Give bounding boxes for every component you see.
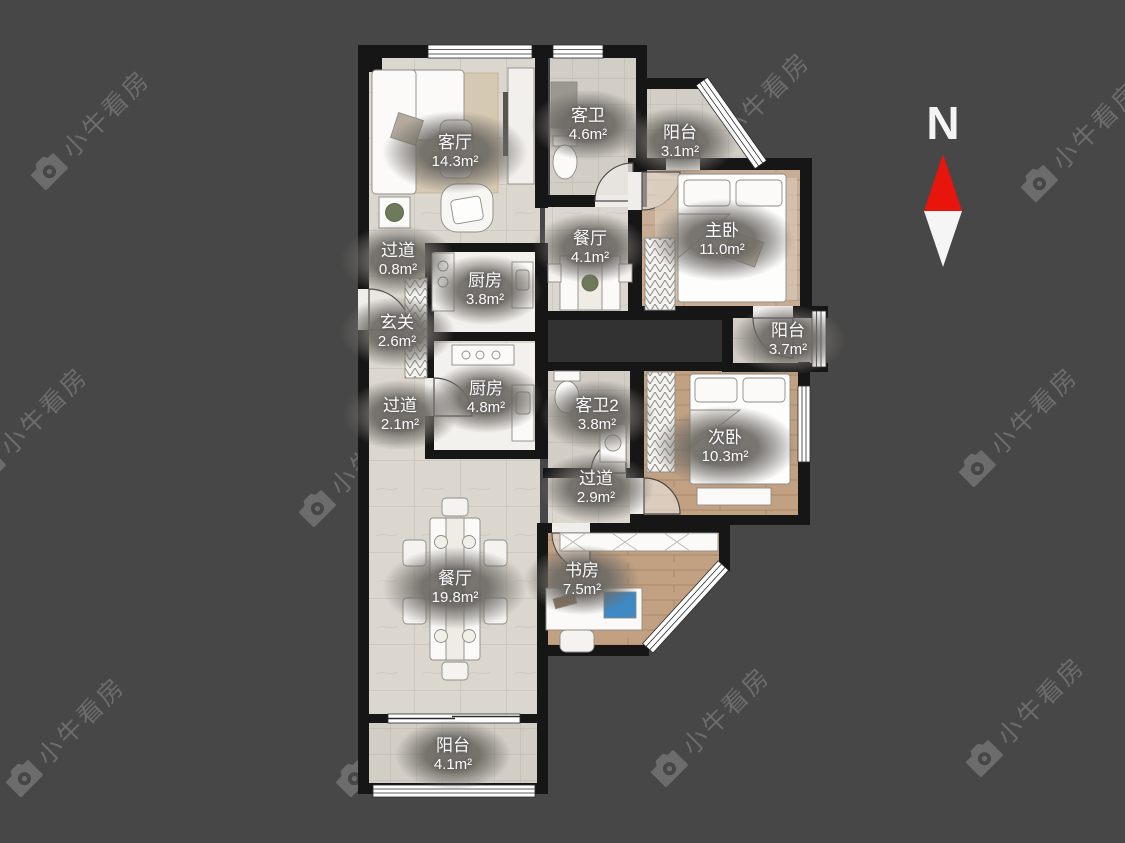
window bbox=[553, 45, 603, 58]
sliding-door bbox=[388, 714, 520, 723]
wall-segment bbox=[425, 243, 537, 252]
compass-needle-south bbox=[924, 211, 962, 267]
coffee-table bbox=[440, 120, 472, 178]
wall-segment bbox=[358, 45, 369, 793]
wall-segment bbox=[537, 723, 548, 794]
dining-nook-table bbox=[548, 256, 632, 310]
wall-segment bbox=[535, 45, 548, 208]
armchair bbox=[441, 184, 493, 232]
wall-segment bbox=[543, 311, 728, 320]
wall-segment bbox=[630, 158, 812, 170]
wall-segment bbox=[800, 158, 812, 318]
floor-balcony-south bbox=[368, 723, 540, 785]
shoe-cabinet bbox=[405, 278, 427, 378]
wall-segment bbox=[543, 468, 593, 478]
window bbox=[798, 386, 810, 462]
wall-segment bbox=[535, 243, 548, 458]
floor-hallway-3 bbox=[548, 476, 632, 525]
compass-needle-icon bbox=[924, 154, 962, 268]
compass: N bbox=[924, 100, 962, 268]
window bbox=[373, 785, 535, 797]
study-cabinet bbox=[560, 533, 718, 551]
wall-segment bbox=[630, 362, 644, 478]
compass-needle-north bbox=[924, 154, 962, 211]
tv-cabinet bbox=[503, 68, 534, 184]
plant-stand bbox=[379, 197, 410, 228]
wall-segment bbox=[722, 311, 733, 371]
floor-shaft-void bbox=[548, 318, 726, 364]
wall-segment bbox=[425, 450, 548, 459]
wall-segment bbox=[427, 332, 537, 341]
master-wardrobe bbox=[645, 238, 675, 310]
compass-north-label: N bbox=[926, 100, 959, 146]
window bbox=[428, 45, 532, 58]
window bbox=[812, 311, 826, 367]
bedroom2-wardrobe bbox=[647, 372, 675, 472]
master-bed bbox=[655, 174, 797, 302]
floorplan-canvas: 小牛看房 小牛看房 小牛看房 小牛看房 小牛看房 小牛看房 小牛看房 小牛看房 … bbox=[0, 0, 1125, 843]
